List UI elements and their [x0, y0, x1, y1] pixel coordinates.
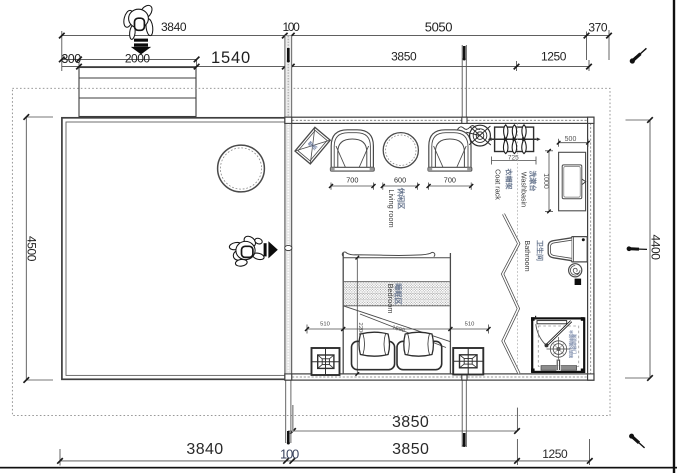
svg-text:500: 500 — [565, 136, 577, 143]
svg-text:Living room: Living room — [387, 189, 396, 227]
svg-text:510: 510 — [465, 322, 475, 328]
svg-text:510: 510 — [320, 322, 330, 328]
svg-text:5050: 5050 — [425, 19, 452, 34]
svg-text:3850: 3850 — [392, 441, 429, 458]
svg-text:洗漱台: 洗漱台 — [529, 171, 538, 192]
svg-text:1000: 1000 — [542, 173, 549, 189]
svg-text:600: 600 — [394, 176, 406, 185]
svg-text:3840: 3840 — [186, 441, 223, 458]
svg-text:休闲区: 休闲区 — [397, 187, 406, 210]
svg-text:Washbasin: Washbasin — [520, 172, 529, 207]
svg-text:衣帽架: 衣帽架 — [505, 169, 514, 190]
svg-text:3850: 3850 — [391, 49, 417, 63]
svg-text:淋浴房移门: 淋浴房移门 — [572, 334, 578, 354]
svg-text:1250: 1250 — [541, 49, 567, 63]
svg-text:1250: 1250 — [542, 447, 568, 461]
svg-text:2000: 2000 — [125, 52, 151, 66]
svg-text:700: 700 — [346, 176, 358, 185]
svg-text:4500: 4500 — [25, 236, 39, 262]
svg-text:Coat rack: Coat rack — [494, 169, 503, 200]
svg-text:100: 100 — [282, 20, 300, 34]
svg-text:4400: 4400 — [649, 234, 663, 260]
svg-text:100: 100 — [280, 446, 299, 461]
svg-text:370: 370 — [588, 21, 608, 35]
svg-text:300: 300 — [61, 52, 81, 66]
svg-text:700: 700 — [444, 176, 456, 185]
svg-text:Bedroom: Bedroom — [386, 284, 395, 314]
svg-text:1540: 1540 — [211, 49, 251, 67]
svg-text:3850: 3850 — [392, 414, 429, 431]
svg-text:3840: 3840 — [161, 20, 187, 34]
svg-text:Bathroom: Bathroom — [523, 240, 532, 271]
svg-text:卫生间: 卫生间 — [536, 240, 545, 261]
